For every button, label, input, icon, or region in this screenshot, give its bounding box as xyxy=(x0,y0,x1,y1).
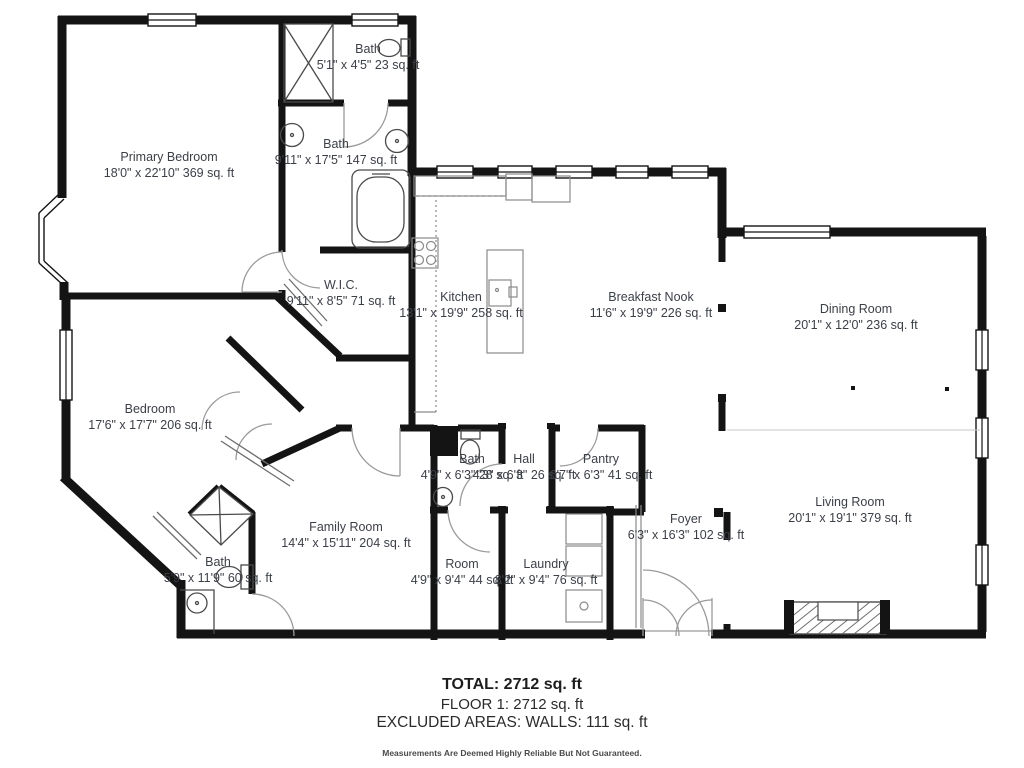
bay-window xyxy=(39,194,68,285)
room-dims: 6'7" x 6'3" 41 sq. ft xyxy=(550,467,653,483)
room-dims: 20'1" x 12'0" 236 sq. ft xyxy=(794,317,917,333)
room-name: Kitchen xyxy=(399,289,522,305)
room-name: Laundry xyxy=(495,556,598,572)
room-name: Family Room xyxy=(281,519,410,535)
room-name: Bath xyxy=(164,554,273,570)
excluded-area-text: EXCLUDED AREAS: WALLS: 111 sq. ft xyxy=(0,714,1024,732)
room-name: Bath xyxy=(275,136,398,152)
room-dims: 9'11" x 17'5" 147 sq. ft xyxy=(275,152,398,168)
total-area-text: TOTAL: 2712 sq. ft xyxy=(0,676,1024,694)
room-dims: 8'2" x 9'4" 76 sq. ft xyxy=(495,572,598,588)
room-label-bedroom: Bedroom 17'6" x 17'7" 206 sq. ft xyxy=(88,401,211,434)
room-name: Primary Bedroom xyxy=(104,149,234,165)
room-label-foyer: Foyer 6'3" x 16'3" 102 sq. ft xyxy=(628,511,745,544)
room-name: Pantry xyxy=(550,451,653,467)
room-label-wic: W.I.C. 9'11" x 8'5" 71 sq. ft xyxy=(287,277,396,310)
disclaimer-text: Measurements Are Deemed Highly Reliable … xyxy=(0,748,1024,758)
fireplace xyxy=(770,600,918,634)
room-dims: 20'1" x 19'1" 379 sq. ft xyxy=(788,510,911,526)
floorplan-drawing xyxy=(0,0,1024,768)
room-label-bath-primary: Bath 9'11" x 17'5" 147 sq. ft xyxy=(275,136,398,169)
room-dims: 14'4" x 15'11" 204 sq. ft xyxy=(281,535,410,551)
room-label-dining-room: Dining Room 20'1" x 12'0" 236 sq. ft xyxy=(794,301,917,334)
floorplan-page: Primary Bedroom 18'0" x 22'10" 369 sq. f… xyxy=(0,0,1024,768)
room-name: Breakfast Nook xyxy=(590,289,713,305)
room-dims: 5'1" x 4'5" 23 sq. ft xyxy=(317,57,420,73)
room-label-family-room: Family Room 14'4" x 15'11" 204 sq. ft xyxy=(281,519,410,552)
room-label-laundry: Laundry 8'2" x 9'4" 76 sq. ft xyxy=(495,556,598,589)
room-name: Foyer xyxy=(628,511,745,527)
room-dims: 6'3" x 16'3" 102 sq. ft xyxy=(628,527,745,543)
room-name: Living Room xyxy=(788,494,911,510)
room-label-breakfast-nook: Breakfast Nook 11'6" x 19'9" 226 sq. ft xyxy=(590,289,713,322)
room-label-primary-bedroom: Primary Bedroom 18'0" x 22'10" 369 sq. f… xyxy=(104,149,234,182)
floor-area-text: FLOOR 1: 2712 sq. ft xyxy=(0,696,1024,713)
room-dims: 13'1" x 19'9" 258 sq. ft xyxy=(399,305,522,321)
room-name: Bath xyxy=(317,41,420,57)
room-label-bath-top: Bath 5'1" x 4'5" 23 sq. ft xyxy=(317,41,420,74)
room-name: W.I.C. xyxy=(287,277,396,293)
room-label-pantry: Pantry 6'7" x 6'3" 41 sq. ft xyxy=(550,451,653,484)
room-dims: 5'9" x 11'9" 60 sq. ft xyxy=(164,570,273,586)
opening-markers xyxy=(430,304,949,517)
room-dims: 17'6" x 17'7" 206 sq. ft xyxy=(88,417,211,433)
room-dims: 9'11" x 8'5" 71 sq. ft xyxy=(287,293,396,309)
room-dims: 18'0" x 22'10" 369 sq. ft xyxy=(104,165,234,181)
room-label-living-room: Living Room 20'1" x 19'1" 379 sq. ft xyxy=(788,494,911,527)
room-dims: 11'6" x 19'9" 226 sq. ft xyxy=(590,305,713,321)
room-label-kitchen: Kitchen 13'1" x 19'9" 258 sq. ft xyxy=(399,289,522,322)
room-name: Bedroom xyxy=(88,401,211,417)
room-name: Dining Room xyxy=(794,301,917,317)
room-label-bath-lower: Bath 5'9" x 11'9" 60 sq. ft xyxy=(164,554,273,587)
